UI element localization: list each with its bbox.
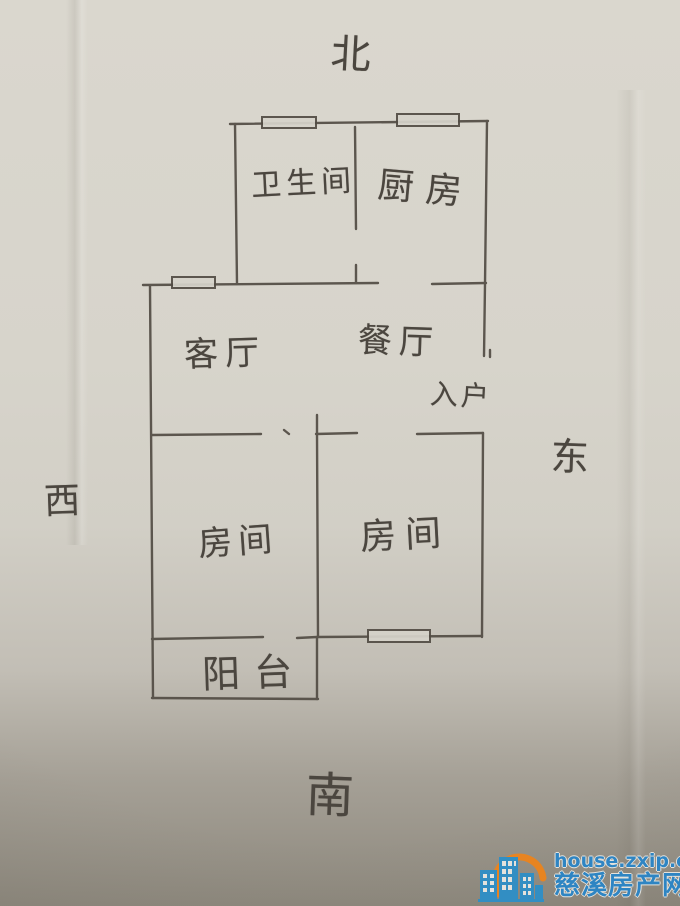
wall-right-lower [482,433,483,637]
window-bedroom-right [368,630,430,642]
compass-label-north: 北 [330,21,373,81]
room-label-living: 客厅 [183,325,267,377]
wall-bedrooms-bottom-1 [152,637,263,639]
compass-label-south: 南 [305,755,355,827]
wall-right-upper [485,121,487,284]
window-kitchen [397,114,459,126]
wall-mid-right [432,283,486,284]
room-label-bedroom-left: 房间 [196,511,279,565]
floor-plan-photo: 北 卫生间 厨房 客厅 餐厅 入户 东 西 房间 房间 阳台 南 [0,0,680,906]
room-label-dining: 餐厅 [357,313,441,365]
wall-balcony-bottom [152,698,318,699]
window-living [172,277,215,288]
room-label-entry: 入户 [429,372,493,415]
door-tick-bedroom-left [284,430,289,434]
compass-label-east: 东 [550,425,590,481]
wall-bathroom-left [235,124,237,284]
watermark-site-name: 慈溪房产网 [554,873,680,899]
wall-bedrooms-top-1 [152,434,261,435]
wall-left-outer [150,286,153,698]
compass-label-west: 西 [43,471,81,524]
wall-bedroom-divider [317,433,318,637]
room-label-bedroom-right: 房间 [359,504,452,561]
room-label-bathroom: 卫生间 [250,155,357,204]
watermark-text: house.zxip.com 慈溪房产网 [554,852,680,899]
wall-bedrooms-top-3 [417,433,483,434]
window-bathroom [262,117,316,128]
room-label-kitchen: 厨房 [376,156,476,216]
room-label-balcony: 阳台 [201,640,307,699]
watermark-url: house.zxip.com [554,852,680,871]
wall-right-mid [484,284,485,356]
site-watermark: house.zxip.com 慈溪房产网 [477,845,680,905]
wall-bedrooms-bottom-2 [297,637,317,638]
buildings-logo-icon [477,846,551,904]
wall-bedrooms-top-2 [316,433,357,434]
